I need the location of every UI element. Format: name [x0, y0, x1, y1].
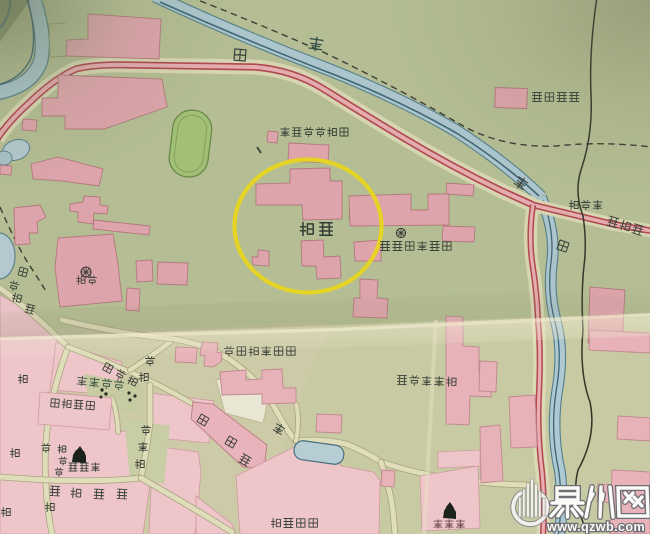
svg-text:www.qzwb.com: www.qzwb.com: [546, 520, 645, 534]
